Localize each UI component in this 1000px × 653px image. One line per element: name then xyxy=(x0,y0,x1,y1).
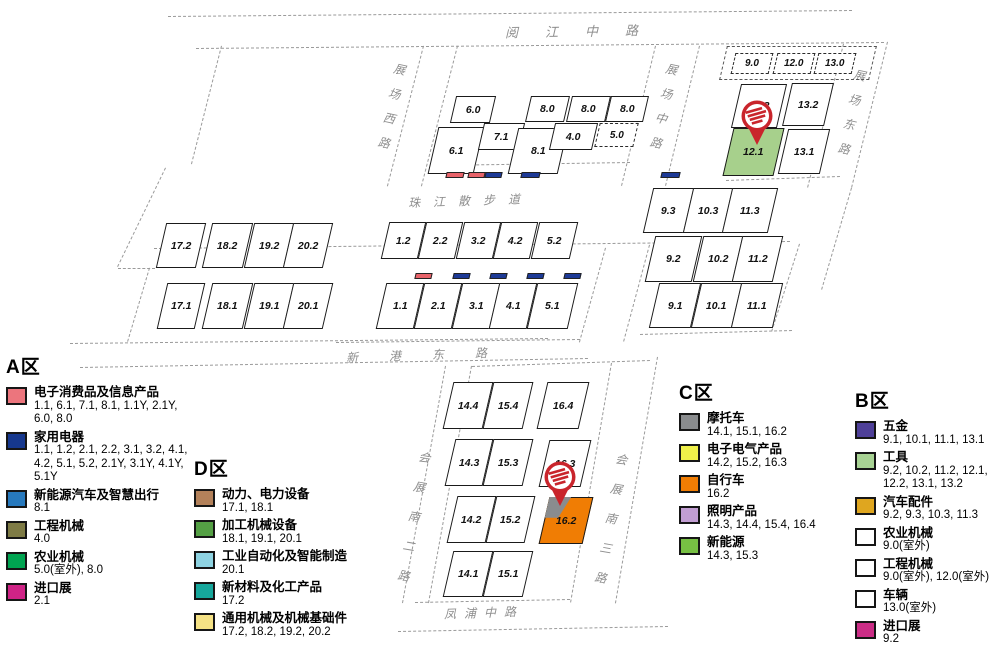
legend-hall-numbers: 17.1, 18.1 xyxy=(222,502,310,516)
hall-label: 1.1 xyxy=(393,300,408,312)
road-boundary-line xyxy=(127,268,150,342)
canton-fair-pin-icon xyxy=(737,99,777,147)
legend-color-swatch xyxy=(6,583,27,601)
legend-category-name: 加工机械设备 xyxy=(222,519,302,533)
road-boundary-line xyxy=(398,626,668,632)
hall-label: 15.4 xyxy=(498,400,518,412)
legend-item: 农业机械9.0(室外) xyxy=(855,527,1000,554)
legend-hall-numbers: 2.1 xyxy=(34,595,72,609)
legend-color-swatch xyxy=(6,521,27,539)
hall-label: 13.2 xyxy=(798,99,818,111)
hall-16.4: 16.4 xyxy=(537,382,590,429)
legend-color-swatch xyxy=(6,490,27,508)
legend-hall-numbers: 9.2, 10.2, 11.2, 12.1, 12.2, 13.1, 13.2 xyxy=(883,465,1000,492)
legend-category-name: 电子消费品及信息产品 xyxy=(34,386,188,400)
hall-label: 17.2 xyxy=(171,240,191,252)
legend-category-name: 农业机械 xyxy=(34,551,103,565)
legend-hall-numbers: 14.2, 15.2, 16.3 xyxy=(707,457,787,471)
legend-hall-numbers: 9.1, 10.1, 11.1, 13.1 xyxy=(883,434,984,448)
legend-item: 照明产品14.3, 14.4, 15.4, 16.4 xyxy=(679,505,855,532)
location-pin xyxy=(737,99,777,152)
annex-hall-marker xyxy=(445,172,464,178)
legend-item: 自行车16.2 xyxy=(679,474,855,501)
road-boundary-line xyxy=(726,176,840,181)
hall-9.0: 9.0 xyxy=(731,53,774,74)
legend-color-swatch xyxy=(855,621,876,639)
legend-item: 工程机械9.0(室外), 12.0(室外) xyxy=(855,558,1000,585)
hall-6.1: 6.1 xyxy=(428,127,485,174)
legend-hall-numbers: 1.1, 1.2, 2.1, 2.2, 3.1, 3.2, 4.1, 4.2, … xyxy=(34,444,188,485)
hall-label: 15.1 xyxy=(498,568,518,580)
legend-category-name: 进口展 xyxy=(34,582,72,596)
hall-6.0: 6.0 xyxy=(450,96,496,123)
legend-category-name: 新能源 xyxy=(707,536,758,550)
hall-label: 16.4 xyxy=(553,400,573,412)
hall-label: 7.1 xyxy=(494,131,509,143)
legend-hall-numbers: 8.1 xyxy=(34,502,159,516)
legend-category-name: 五金 xyxy=(883,420,984,434)
legend-item: 动力、电力设备17.1, 18.1 xyxy=(194,488,406,515)
hall-label: 19.2 xyxy=(259,240,279,252)
hall-label: 8.0 xyxy=(540,103,555,115)
hall-label: 11.3 xyxy=(740,205,760,217)
legend-color-swatch xyxy=(679,413,700,431)
legend-color-swatch xyxy=(855,452,876,470)
hall-label: 11.2 xyxy=(748,253,768,265)
legend-item: 加工机械设备18.1, 19.1, 20.1 xyxy=(194,519,406,546)
legend-hall-numbers: 17.2 xyxy=(222,595,322,609)
hall-label: 9.2 xyxy=(666,253,681,265)
zone-a-title: A区 xyxy=(6,352,188,379)
hall-12.0: 12.0 xyxy=(773,53,816,74)
road-label-xingang-east-road: 新港东路 xyxy=(346,343,519,366)
legend-item: 进口展9.2 xyxy=(855,620,1000,647)
hall-5.0: 5.0 xyxy=(594,123,639,147)
legend-hall-numbers: 1.1, 6.1, 7.1, 8.1, 1.1Y, 2.1Y, 6.0, 8.0 xyxy=(34,400,188,427)
legend-category-name: 汽车配件 xyxy=(883,496,978,510)
legend-category-name: 新材料及化工产品 xyxy=(222,581,322,595)
legend-item: 工业自动化及智能制造20.1 xyxy=(194,550,406,577)
hall-label: 14.1 xyxy=(458,568,478,580)
legend-category-name: 车辆 xyxy=(883,589,936,603)
annex-hall-marker xyxy=(467,172,485,178)
road-boundary-line xyxy=(415,599,570,603)
hall-11.3: 11.3 xyxy=(722,188,778,233)
hall-label: 10.1 xyxy=(706,300,726,312)
legend-zone-c: C区 摩托车14.1, 15.1, 16.2电子电气产品14.2, 15.2, … xyxy=(679,378,855,567)
legend-hall-numbers: 18.1, 19.1, 20.1 xyxy=(222,533,302,547)
legend-item: 新能源汽车及智慧出行8.1 xyxy=(6,489,188,516)
road-boundary-line xyxy=(821,188,852,290)
annex-hall-marker xyxy=(414,273,432,279)
hall-label: 5.0 xyxy=(610,130,624,141)
annex-hall-marker xyxy=(660,172,680,178)
legend-category-name: 照明产品 xyxy=(707,505,816,519)
road-boundary-line xyxy=(168,10,852,17)
legend-hall-numbers: 9.0(室外), 12.0(室外) xyxy=(883,571,989,585)
annex-hall-marker xyxy=(526,273,544,279)
road-label-huizhan-south-3rd-road: 会 展 南 三 路 xyxy=(592,444,630,594)
road-label-zhanchang-west-road: 展 场 西 路 xyxy=(375,57,408,157)
legend-item: 家用电器1.1, 1.2, 2.1, 2.2, 3.1, 3.2, 4.1, 4… xyxy=(6,431,188,485)
hall-label: 4.2 xyxy=(508,235,523,247)
hall-label: 2.1 xyxy=(431,300,446,312)
legend-item: 进口展2.1 xyxy=(6,582,188,609)
legend-zone-d: D区 动力、电力设备17.1, 18.1加工机械设备18.1, 19.1, 20… xyxy=(194,454,406,643)
legend-hall-numbers: 16.2 xyxy=(707,488,745,502)
legend-color-swatch xyxy=(194,613,215,631)
legend-item: 通用机械及机械基础件17.2, 18.2, 19.2, 20.2 xyxy=(194,612,406,639)
hall-label: 19.1 xyxy=(259,300,279,312)
hall-label: 9.0 xyxy=(745,58,759,69)
legend-color-swatch xyxy=(855,559,876,577)
hall-label: 16.2 xyxy=(556,515,576,527)
legend-item: 电子消费品及信息产品1.1, 6.1, 7.1, 8.1, 1.1Y, 2.1Y… xyxy=(6,386,188,427)
hall-13.0: 13.0 xyxy=(814,53,857,74)
hall-label: 14.2 xyxy=(461,514,481,526)
legend-color-swatch xyxy=(6,387,27,405)
hall-label: 6.1 xyxy=(449,145,464,157)
legend-color-swatch xyxy=(194,489,215,507)
legend-color-swatch xyxy=(679,444,700,462)
hall-label: 9.1 xyxy=(668,300,683,312)
hall-label: 1.2 xyxy=(396,235,411,247)
legend-zone-b: B区 五金9.1, 10.1, 11.1, 13.1工具9.2, 10.2, 1… xyxy=(855,386,1000,651)
hall-label: 13.0 xyxy=(825,58,844,69)
legend-category-name: 自行车 xyxy=(707,474,745,488)
hall-label: 2.2 xyxy=(433,235,448,247)
legend-hall-numbers: 17.2, 18.2, 19.2, 20.2 xyxy=(222,626,347,640)
hall-label: 11.1 xyxy=(747,300,767,312)
hall-8.0: 8.0 xyxy=(605,96,649,122)
road-label-zhujiang-walkway: 珠江散步道 xyxy=(408,190,534,211)
hall-label: 8.0 xyxy=(581,103,596,115)
road-boundary-line xyxy=(579,248,606,342)
hall-label: 15.3 xyxy=(498,457,518,469)
legend-color-swatch xyxy=(194,520,215,538)
hall-label: 10.2 xyxy=(708,253,728,265)
hall-17.1: 17.1 xyxy=(157,283,206,329)
legend-category-name: 工业自动化及智能制造 xyxy=(222,550,347,564)
annex-hall-marker xyxy=(452,273,470,279)
hall-label: 12.0 xyxy=(784,58,803,69)
hall-label: 5.1 xyxy=(545,300,560,312)
legend-category-name: 农业机械 xyxy=(883,527,933,541)
annex-hall-marker xyxy=(484,172,502,178)
legend-hall-numbers: 14.3, 15.3 xyxy=(707,550,758,564)
legend-hall-numbers: 20.1 xyxy=(222,564,347,578)
legend-hall-numbers: 4.0 xyxy=(34,533,84,547)
legend-category-name: 工程机械 xyxy=(883,558,989,572)
hall-label: 3.1 xyxy=(469,300,484,312)
hall-label: 5.2 xyxy=(547,235,562,247)
legend-hall-numbers: 9.0(室外) xyxy=(883,540,933,554)
legend-color-swatch xyxy=(679,506,700,524)
hall-8.0: 8.0 xyxy=(525,96,570,122)
hall-label: 14.3 xyxy=(459,457,479,469)
annex-hall-marker xyxy=(563,273,581,279)
legend-category-name: 摩托车 xyxy=(707,412,787,426)
legend-category-name: 新能源汽车及智慧出行 xyxy=(34,489,159,503)
hall-label: 14.4 xyxy=(458,400,478,412)
legend-color-swatch xyxy=(855,421,876,439)
annex-hall-marker xyxy=(520,172,540,178)
legend-item: 工程机械4.0 xyxy=(6,520,188,547)
road-boundary-line xyxy=(640,330,792,335)
road-label-yuejiang-middle-road: 阅江中路 xyxy=(505,20,665,42)
legend-color-swatch xyxy=(6,552,27,570)
legend-color-swatch xyxy=(194,551,215,569)
hall-4.0: 4.0 xyxy=(549,123,598,150)
legend-item: 汽车配件9.2, 9.3, 10.3, 11.3 xyxy=(855,496,1000,523)
location-pin xyxy=(540,460,580,513)
legend-item: 农业机械5.0(室外), 8.0 xyxy=(6,551,188,578)
zone-c-title: C区 xyxy=(679,378,855,405)
hall-8.0: 8.0 xyxy=(566,96,611,122)
canton-fair-pin-icon xyxy=(540,460,580,508)
hall-label: 6.0 xyxy=(466,104,481,116)
legend-category-name: 进口展 xyxy=(883,620,921,634)
legend-hall-numbers: 5.0(室外), 8.0 xyxy=(34,564,103,578)
legend-color-swatch xyxy=(855,590,876,608)
legend-hall-numbers: 9.2, 9.3, 10.3, 11.3 xyxy=(883,509,978,523)
legend-category-name: 电子电气产品 xyxy=(707,443,787,457)
hall-label: 4.1 xyxy=(506,300,521,312)
legend-hall-numbers: 13.0(室外) xyxy=(883,602,936,616)
legend-item: 摩托车14.1, 15.1, 16.2 xyxy=(679,412,855,439)
legend-item: 新能源14.3, 15.3 xyxy=(679,536,855,563)
hall-label: 15.2 xyxy=(500,514,520,526)
legend-color-swatch xyxy=(679,537,700,555)
legend-category-name: 工程机械 xyxy=(34,520,84,534)
legend-color-swatch xyxy=(679,475,700,493)
hall-label: 20.1 xyxy=(298,300,318,312)
hall-label: 18.2 xyxy=(217,240,237,252)
legend-category-name: 家用电器 xyxy=(34,431,188,445)
hall-13.1: 13.1 xyxy=(778,129,830,174)
zone-b-title: B区 xyxy=(855,386,1000,413)
exhibition-grounds-map: A区 电子消费品及信息产品1.1, 6.1, 7.1, 8.1, 1.1Y, 2… xyxy=(0,0,1000,653)
legend-category-name: 工具 xyxy=(883,451,1000,465)
annex-hall-marker xyxy=(489,273,507,279)
legend-category-name: 通用机械及机械基础件 xyxy=(222,612,347,626)
hall-label: 8.1 xyxy=(531,145,546,157)
legend-color-swatch xyxy=(855,528,876,546)
legend-color-swatch xyxy=(194,582,215,600)
hall-label: 18.1 xyxy=(217,300,237,312)
legend-zone-a: A区 电子消费品及信息产品1.1, 6.1, 7.1, 8.1, 1.1Y, 2… xyxy=(6,352,188,613)
legend-hall-numbers: 14.1, 15.1, 16.2 xyxy=(707,426,787,440)
legend-hall-numbers: 9.2 xyxy=(883,633,921,647)
hall-13.2: 13.2 xyxy=(782,83,834,126)
legend-color-swatch xyxy=(6,432,27,450)
hall-label: 9.3 xyxy=(661,205,676,217)
hall-5.2: 5.2 xyxy=(531,222,579,259)
hall-label: 13.1 xyxy=(794,146,814,158)
zone-d-title: D区 xyxy=(194,454,406,481)
road-label-fengpu-middle-road: 凤浦中路 xyxy=(444,603,525,623)
road-boundary-line xyxy=(623,245,650,342)
hall-label: 4.0 xyxy=(566,131,581,143)
hall-label: 10.3 xyxy=(698,205,718,217)
road-boundary-line xyxy=(472,360,650,367)
hall-label: 17.1 xyxy=(171,300,191,312)
legend-item: 工具9.2, 10.2, 11.2, 12.1, 12.2, 13.1, 13.… xyxy=(855,451,1000,492)
legend-item: 五金9.1, 10.1, 11.1, 13.1 xyxy=(855,420,1000,447)
legend-hall-numbers: 14.3, 14.4, 15.4, 16.4 xyxy=(707,519,816,533)
hall-17.2: 17.2 xyxy=(156,223,206,268)
legend-color-swatch xyxy=(855,497,876,515)
legend-item: 新材料及化工产品17.2 xyxy=(194,581,406,608)
hall-label: 8.0 xyxy=(620,103,635,115)
hall-label: 20.2 xyxy=(298,240,318,252)
legend-item: 电子电气产品14.2, 15.2, 16.3 xyxy=(679,443,855,470)
legend-category-name: 动力、电力设备 xyxy=(222,488,310,502)
legend-item: 车辆13.0(室外) xyxy=(855,589,1000,616)
road-boundary-line xyxy=(191,46,222,164)
hall-label: 3.2 xyxy=(471,235,486,247)
